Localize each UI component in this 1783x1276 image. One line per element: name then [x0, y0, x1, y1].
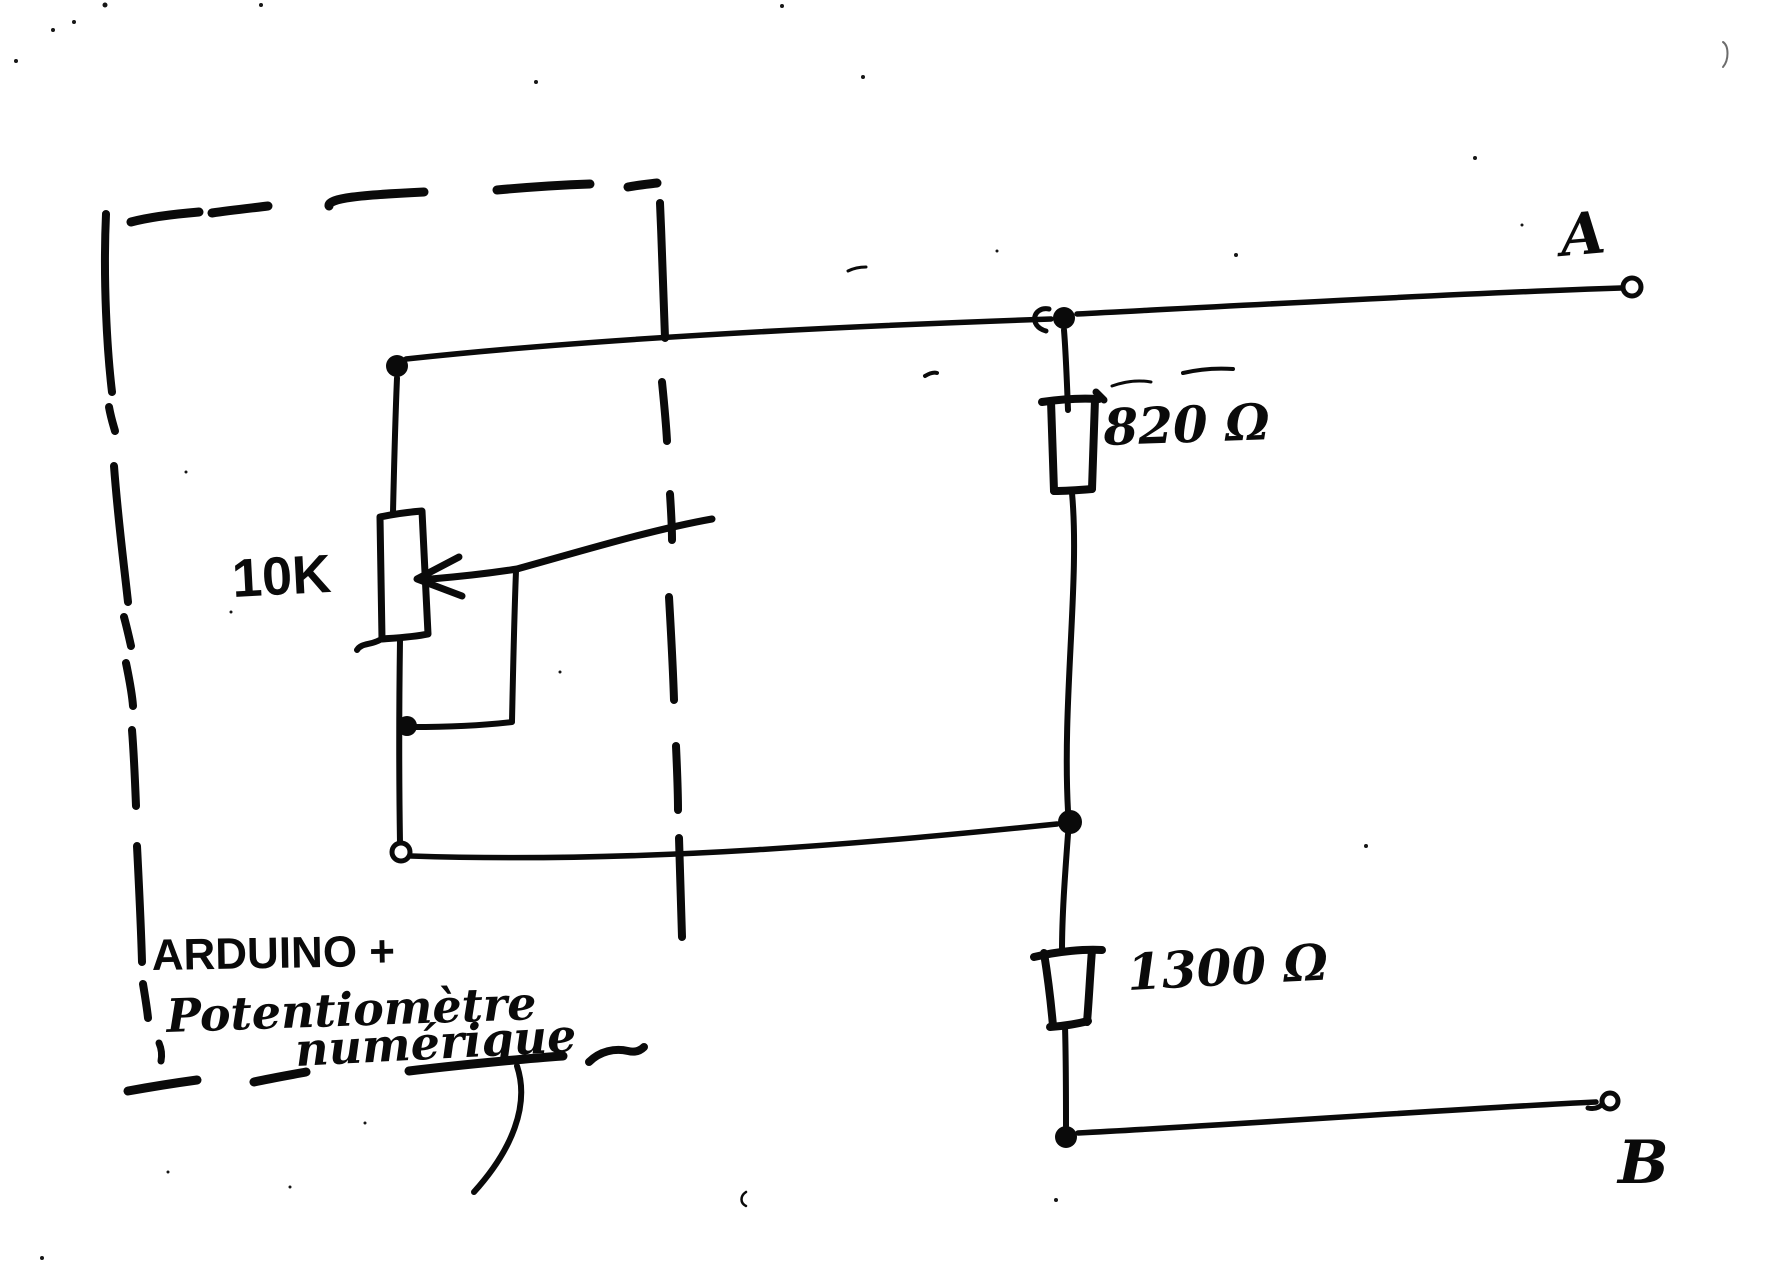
enclosure-left-dash [143, 984, 148, 1018]
wire-junction-to-terminal-a [1077, 288, 1621, 314]
handwriting-descender-stroke [474, 1066, 521, 1192]
noise-speck [40, 1256, 44, 1260]
resistor-1300-box-right [1087, 950, 1092, 1022]
enclosure-left-dash [109, 407, 115, 431]
bottom-node-dot [1055, 1126, 1077, 1148]
pot-bottom-leg-wire [399, 640, 400, 843]
stray-stroke [848, 267, 866, 271]
noise-speck [103, 3, 108, 8]
schematic-canvas: A B 820 Ω 1300 Ω 10K ARDUINO + Potentiom… [0, 0, 1783, 1276]
enclosure-right-dash [676, 746, 678, 810]
noise-speck [1054, 1198, 1058, 1202]
resistor-820-box-bottom [1054, 489, 1092, 491]
noise-speck [861, 75, 865, 79]
enclosure-right-dash [662, 382, 667, 441]
terminals [1602, 278, 1641, 1109]
noise-speck [259, 3, 263, 7]
resistor-1300-label: 1300 Ω [1126, 933, 1330, 1002]
pot-wiper-arrow-shaft [431, 519, 712, 579]
noise-speck [996, 250, 999, 253]
resistor-1300 [1034, 950, 1102, 1027]
terminal-a-circle [1623, 278, 1641, 296]
noise-speck [364, 1122, 367, 1125]
enclosure-top-dash [329, 192, 424, 206]
pot-bottom-terminal-circle [392, 843, 410, 861]
wire-bottom-node-to-terminal-b [1078, 1102, 1596, 1133]
noise-speck [1234, 253, 1238, 257]
enclosure-left-dash [137, 846, 142, 962]
stray-stroke [1112, 381, 1151, 386]
pot-body-corner-squiggle [357, 638, 383, 650]
noise-speck [230, 611, 233, 614]
pot-top-lead-wire [393, 378, 397, 512]
potentiometer-value-label: 10K [230, 544, 332, 609]
enclosure-label-line1: ARDUINO + [151, 927, 395, 980]
potentiometer [357, 355, 712, 861]
enclosure-left-dash [114, 466, 128, 602]
wire-resistor-1300-to-bottom-node [1065, 1026, 1066, 1126]
wire-pot-top-to-junction [406, 319, 1051, 359]
enclosure-left-dash [105, 214, 112, 392]
wires [406, 288, 1621, 1133]
enclosure-left-dash [126, 663, 133, 706]
noise-speck [780, 4, 784, 8]
stray-stroke [925, 373, 937, 376]
noise-speck [1473, 156, 1477, 160]
noise-speck [1364, 844, 1368, 848]
noise-speck [14, 59, 18, 63]
wire-pot-bottom-to-mid-junction [411, 824, 1057, 858]
resistor-1300-box-left [1044, 953, 1053, 1026]
noise-speck [559, 671, 562, 674]
resistor-820-box-left [1051, 401, 1054, 491]
enclosure-right-dash [660, 203, 665, 338]
pot-wiper-return-wire [412, 722, 512, 727]
enclosure-bottom-dash [589, 1047, 644, 1062]
enclosure-right-dash [669, 597, 674, 700]
enclosure-right-dash [670, 494, 672, 540]
scan-noise [14, 3, 1728, 1261]
terminal-b-label: B [1616, 1128, 1669, 1198]
enclosure-top-dash [212, 206, 268, 213]
noise-speck [167, 1171, 170, 1174]
stray-stroke [1183, 369, 1233, 373]
pot-wiper-drop-wire [512, 571, 516, 721]
labels: A B 820 Ω 1300 Ω 10K ARDUINO + Potentiom… [151, 198, 1668, 1198]
noise-speck [51, 28, 55, 32]
noise-curl [1723, 42, 1728, 67]
resistor-820-box-right [1092, 399, 1095, 489]
resistor-820 [1042, 392, 1104, 491]
enclosure-top-dash [131, 212, 199, 222]
enclosure-top-dash [628, 183, 657, 187]
enclosure-left-dash [132, 730, 136, 806]
noise-speck [185, 471, 188, 474]
enclosure-bottom-dash [128, 1080, 197, 1091]
noise-curl [742, 1192, 747, 1206]
terminal-b-circle [1602, 1093, 1618, 1109]
terminal-a-label: A [1552, 198, 1608, 270]
noise-speck [1521, 224, 1524, 227]
resistor-820-label: 820 Ω [1101, 392, 1271, 457]
enclosure-left-dash [124, 617, 131, 646]
junction-a-node-dot [1053, 307, 1075, 329]
noise-speck [72, 20, 76, 24]
noise-speck [289, 1186, 292, 1189]
enclosure-left-dash [159, 1043, 162, 1061]
mid-junction-dot [1058, 810, 1082, 834]
wire-resistor-820-to-mid-junction [1067, 493, 1074, 811]
wire-mid-junction-to-resistor-1300 [1062, 834, 1068, 951]
enclosure-top-dash [497, 184, 590, 190]
noise-speck [534, 80, 538, 84]
